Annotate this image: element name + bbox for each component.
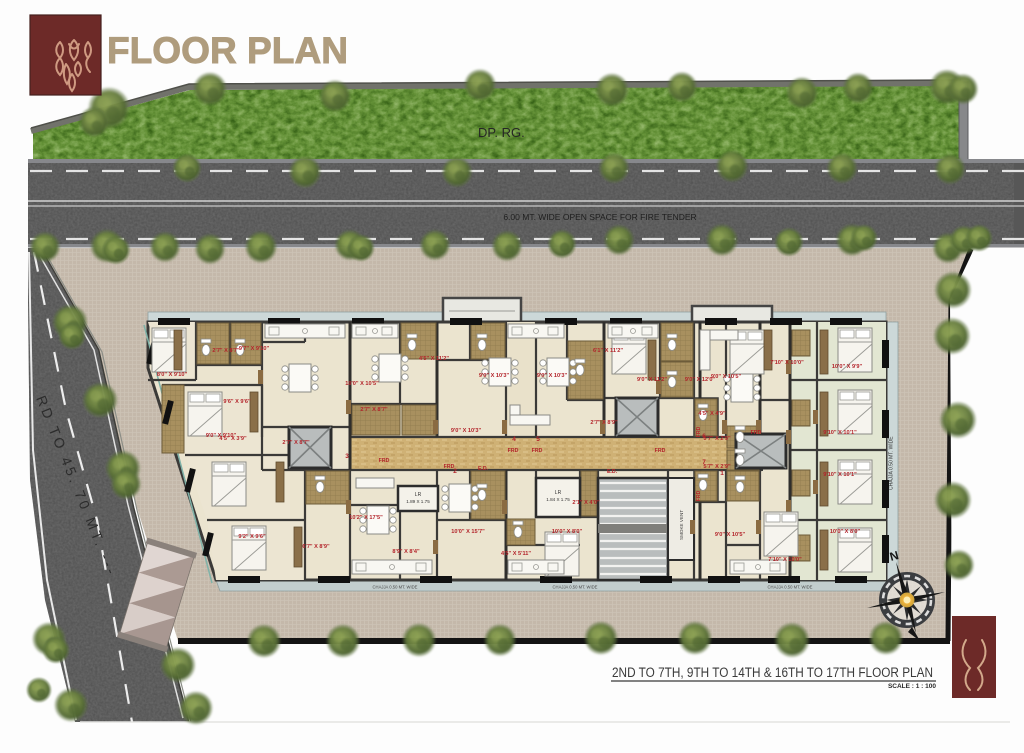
svg-text:E.D.: E.D.	[607, 469, 618, 475]
svg-text:10'0" X 10'5": 10'0" X 10'5"	[345, 381, 379, 387]
svg-text:9'10" X 10'1": 9'10" X 10'1"	[823, 430, 857, 436]
svg-text:9'7" X 9'10": 9'7" X 9'10"	[239, 346, 270, 352]
svg-text:FRD: FRD	[751, 430, 762, 436]
svg-text:FRD: FRD	[655, 448, 666, 454]
svg-text:2'1" X 4'0": 2'1" X 4'0"	[572, 500, 600, 506]
svg-text:9'0" X 11'2": 9'0" X 11'2"	[637, 377, 667, 383]
svg-text:CHAJJA 0.50 MT. WIDE: CHAJJA 0.50 MT. WIDE	[373, 585, 418, 590]
svg-text:CHAJJA 0.50 MT. WIDE: CHAJJA 0.50 MT. WIDE	[553, 585, 598, 590]
svg-text:2ND TO 7TH, 9TH TO 14TH & 16TH: 2ND TO 7TH, 9TH TO 14TH & 16TH TO 17TH F…	[612, 665, 933, 680]
svg-text:9'0" X 10'3": 9'0" X 10'3"	[537, 373, 568, 379]
svg-text:8'9" X 8'4": 8'9" X 8'4"	[392, 549, 420, 555]
svg-text:FLOOR PLAN: FLOOR PLAN	[107, 30, 348, 71]
svg-text:2'7" X 8'7": 2'7" X 8'7"	[282, 440, 310, 446]
svg-text:9'6" X 9'6": 9'6" X 9'6"	[223, 399, 251, 405]
svg-text:9'0" X 10'5": 9'0" X 10'5"	[715, 532, 746, 538]
svg-text:FRD: FRD	[508, 448, 519, 454]
svg-text:9'0" X 9'10": 9'0" X 9'10"	[206, 433, 237, 439]
svg-text:7: 7	[702, 459, 706, 466]
svg-text:10'0" X 15'7": 10'0" X 15'7"	[451, 529, 485, 535]
svg-text:2'7" X 8'7": 2'7" X 8'7"	[212, 348, 240, 354]
svg-text:4'5" X 4'9": 4'5" X 4'9"	[698, 411, 726, 417]
svg-text:FRD: FRD	[696, 490, 702, 501]
svg-text:4'5" X 5'11": 4'5" X 5'11"	[501, 551, 531, 557]
svg-text:5'7" X 2'9": 5'7" X 2'9"	[703, 464, 731, 470]
svg-text:6'7" X 8'9": 6'7" X 8'9"	[302, 544, 330, 550]
svg-text:2'7" X 8'7": 2'7" X 8'7"	[360, 407, 388, 413]
svg-text:9'0" X 10'5": 9'0" X 10'5"	[711, 374, 742, 380]
svg-text:FRD: FRD	[379, 458, 390, 464]
svg-text:FRD: FRD	[532, 448, 543, 454]
svg-text:SMOKE VENT: SMOKE VENT	[679, 510, 684, 540]
svg-text:2'7" X 8'9": 2'7" X 8'9"	[590, 420, 618, 426]
svg-text:5'7" X 2'9": 5'7" X 2'9"	[703, 436, 731, 442]
svg-text:9'2" X 9'6": 9'2" X 9'6"	[238, 534, 266, 540]
svg-text:9'10" X 10'1": 9'10" X 10'1"	[823, 472, 857, 478]
svg-text:9'0" X 10'3": 9'0" X 10'3"	[451, 428, 482, 434]
svg-text:7'10" X 10'0": 7'10" X 10'0"	[770, 360, 804, 366]
svg-text:E.D.: E.D.	[478, 466, 489, 472]
svg-text:5: 5	[536, 436, 540, 443]
svg-text:FRD: FRD	[696, 426, 702, 437]
svg-text:LR: LR	[555, 490, 562, 496]
svg-text:LR: LR	[415, 492, 422, 498]
svg-text:4'5" X 11'2": 4'5" X 11'2"	[419, 356, 449, 362]
svg-text:8'0" X 9'10": 8'0" X 9'10"	[157, 372, 188, 378]
svg-text:3: 3	[345, 453, 349, 460]
svg-text:6'1" X 11'2": 6'1" X 11'2"	[593, 348, 623, 354]
svg-text:6.00 MT. WIDE OPEN SPACE FOR F: 6.00 MT. WIDE OPEN SPACE FOR FIRE TENDER	[503, 212, 696, 222]
svg-text:9'0" X 10'3": 9'0" X 10'3"	[479, 373, 510, 379]
svg-text:1.89 X 1.75: 1.89 X 1.75	[406, 499, 430, 504]
svg-text:10'0" X 9'9": 10'0" X 9'9"	[832, 364, 863, 370]
svg-text:DP. RG.: DP. RG.	[478, 125, 525, 140]
svg-text:10'2" X 17'5": 10'2" X 17'5"	[349, 515, 383, 521]
svg-text:10'0" X 8'0": 10'0" X 8'0"	[830, 529, 861, 535]
svg-text:CHAJJA 0.50 MT. WIDE: CHAJJA 0.50 MT. WIDE	[889, 436, 895, 490]
svg-text:SCALE : 1 : 100: SCALE : 1 : 100	[888, 683, 936, 690]
svg-text:1: 1	[720, 470, 724, 477]
svg-text:10'0" X 8'0": 10'0" X 8'0"	[552, 529, 583, 535]
svg-text:6: 6	[702, 433, 706, 440]
svg-text:7'10" X 10'0": 7'10" X 10'0"	[768, 557, 802, 563]
svg-text:4: 4	[512, 436, 516, 443]
svg-text:1.84 X 1.75: 1.84 X 1.75	[546, 497, 570, 502]
svg-text:2: 2	[453, 468, 457, 475]
svg-text:CHAJJA 0.50 MT. WIDE: CHAJJA 0.50 MT. WIDE	[768, 585, 813, 590]
